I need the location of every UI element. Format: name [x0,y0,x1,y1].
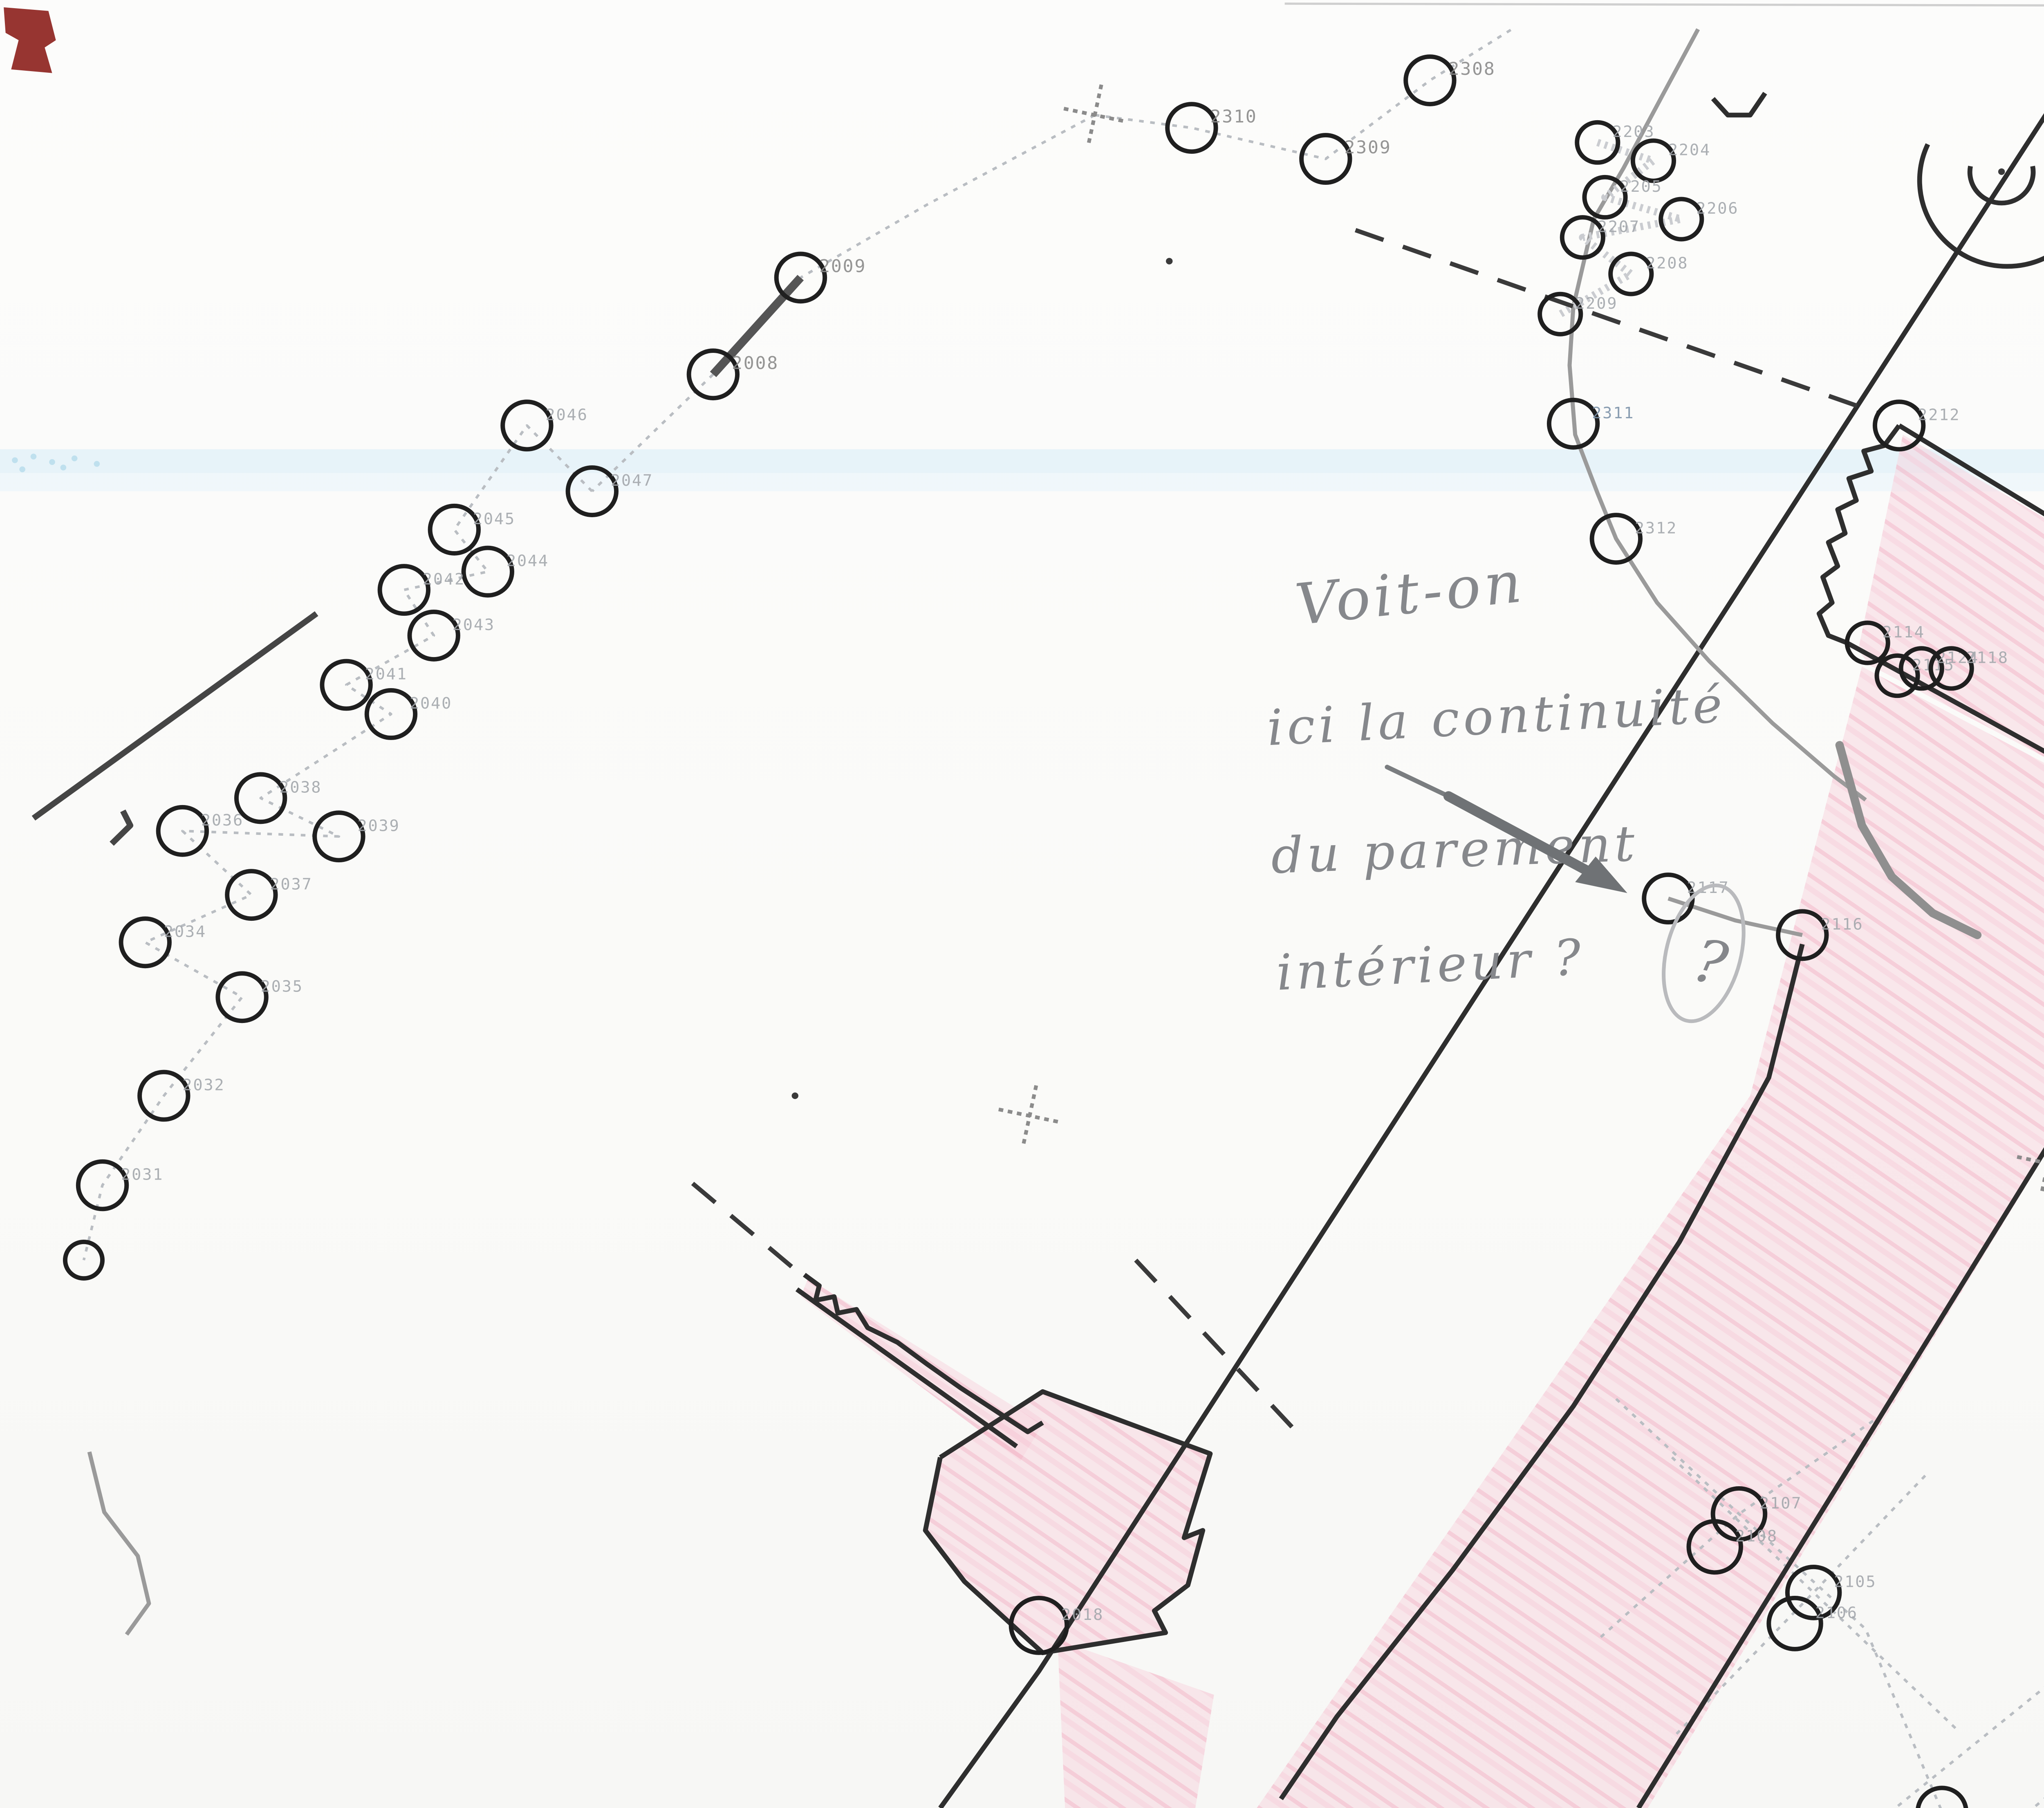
survey-point-circle [1406,56,1454,104]
survey-point-label: 2310 [1210,107,1257,127]
survey-point-label: 2031 [121,1166,164,1184]
pencil-line [90,1452,149,1635]
survey-point-label: 2044 [507,552,549,570]
survey-point-label: 2038 [279,778,322,797]
grid-cross [992,1079,1067,1153]
survey-point-label: 2208 [1646,254,1688,273]
survey-point-label: 2018 [1061,1606,1104,1624]
wall-line [1713,93,1765,115]
seg-line [112,811,130,843]
survey-point-circle [1633,141,1674,181]
survey-point-label: 2206 [1696,200,1739,218]
survey-point-label: 2116 [1821,915,1863,934]
survey-point-label: 2107 [1759,1494,1802,1513]
scan-speck [94,461,100,467]
survey-point-circle [227,871,276,919]
scanner-artifact-bands [0,7,2044,491]
red-corner-mark [4,7,56,73]
dot-line [800,115,1095,278]
handwriting-line: Voit-on [1292,549,1528,638]
annotation-arrow-tail [1387,767,1448,796]
seg-line [34,614,316,818]
survey-point-circle [1769,1598,1821,1649]
survey-point-label: 2207 [1598,218,1640,236]
survey-point-label: 2041 [365,665,408,684]
edge-line [1285,4,2044,7]
survey-point-label: 2204 [1668,141,1711,159]
survey-point-label: 2040 [410,694,452,713]
grid-cross [2038,228,2044,302]
survey-point-circle [1611,254,1652,294]
scan-speck [72,455,78,461]
survey-point-circle [430,506,478,553]
survey-point-circle [1918,1788,1966,1808]
arc-feature [1920,144,2044,267]
point-dot [792,1092,798,1099]
dot-line [2033,1118,2044,1808]
scan-speck [31,454,37,460]
scanned-survey-plan: 2046204720452044204220432041204020382039… [0,0,2044,1808]
scan-speck [49,459,55,465]
survey-point-label: 2039 [357,817,400,835]
survey-point-label: 2205 [1620,177,1662,196]
survey-point-label: 2009 [819,256,866,277]
survey-point-label: 2036 [201,811,244,830]
survey-point-label: 2312 [1635,519,1677,538]
plan-drawing: 2046204720452044204220432041204020382039… [0,0,2044,1808]
survey-point-circle [464,548,512,595]
survey-point-label: 2106 [1815,1604,1858,1622]
survey-point-label: 2108 [1735,1527,1778,1546]
survey-point-circle [121,919,169,966]
survey-point-circle [218,974,266,1021]
survey-point-label: 2043 [453,616,495,634]
point-dot [1998,168,2005,175]
survey-point-label: 2311 [1592,404,1634,422]
survey-point-circle [1661,199,1702,239]
survey-point-label: 2203 [1612,123,1655,141]
question-bubble-mark: ? [1688,926,1734,999]
survey-point-label: 2308 [1448,59,1495,80]
survey-point-label: 2114 [1883,623,1925,642]
survey-point-label: 2042 [423,570,465,589]
handwritten-annotation: Voit-onici la continuitédu parementintér… [1266,549,1757,1030]
survey-point-label: 2034 [164,923,206,941]
survey-point-label: 2032 [182,1076,225,1095]
survey-point-label: 2105 [1834,1573,1876,1591]
scan-speck [19,467,25,472]
survey-point-label: 2309 [1344,138,1391,158]
survey-point-label: 2047 [611,471,653,490]
dashed-wall-projection [693,1183,797,1271]
survey-point-label: 2037 [270,875,312,894]
survey-point-circle [1577,122,1618,162]
dashed-wall-projection [1136,1260,1303,1439]
survey-point-label: 2118 [1966,649,2009,667]
survey-point-label: 2008 [732,353,779,374]
wall-line [797,1289,1016,1446]
handwriting-line: ici la continuité [1266,676,1728,757]
pink-area-hatch [1058,1640,1214,1808]
survey-point-label: 2212 [1918,406,1960,424]
survey-point-label: 2209 [1575,294,1618,313]
grid-cross [1057,78,1132,152]
survey-point-label: 2046 [545,406,588,424]
scan-band [0,449,2044,473]
scan-speck [61,464,67,470]
scan-speck [12,457,18,463]
survey-point-circle [380,566,428,614]
point-dot [1166,258,1172,265]
survey-point-label: 2045 [473,510,515,528]
scan-band [0,473,2044,491]
handwriting-line: intérieur ? [1275,928,1586,1001]
survey-point-label: 2035 [261,978,303,996]
survey-point-circle [1168,104,1216,152]
grid-cross-arm [1023,1086,1036,1146]
